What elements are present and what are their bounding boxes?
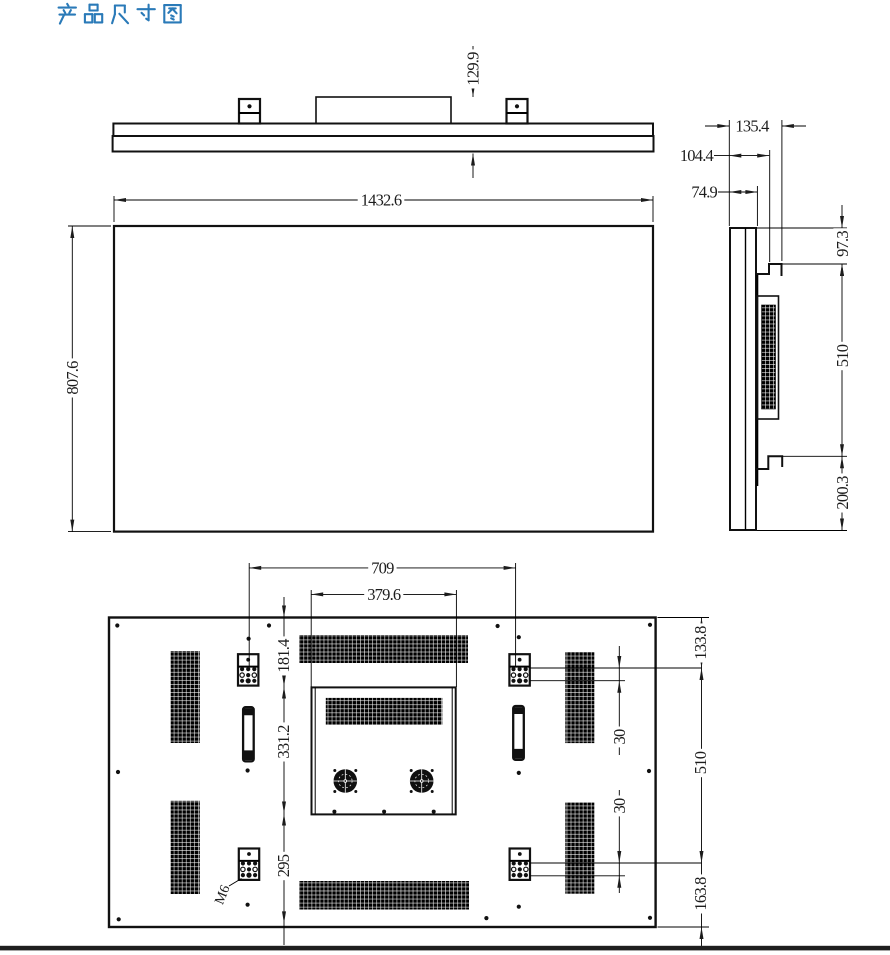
svg-text:133.8: 133.8 (691, 626, 710, 660)
svg-text:74.9: 74.9 (691, 183, 717, 202)
svg-text:709: 709 (371, 558, 394, 577)
svg-text:181.4: 181.4 (274, 639, 293, 673)
svg-text:331.2: 331.2 (274, 725, 293, 759)
svg-text:510: 510 (691, 751, 710, 774)
svg-text:30: 30 (610, 798, 629, 813)
svg-text:295: 295 (274, 854, 293, 877)
svg-text:510: 510 (833, 344, 852, 367)
svg-text:807.6: 807.6 (63, 361, 82, 395)
svg-text:135.4: 135.4 (735, 117, 769, 136)
svg-text:1432.6: 1432.6 (361, 191, 402, 210)
svg-text:379.6: 379.6 (367, 585, 401, 604)
svg-text:200.3: 200.3 (833, 476, 852, 510)
svg-text:129.9: 129.9 (464, 52, 483, 86)
svg-text:30: 30 (610, 729, 629, 744)
svg-text:104.4: 104.4 (680, 146, 714, 165)
svg-text:163.8: 163.8 (691, 877, 710, 911)
svg-text:97.3: 97.3 (833, 231, 852, 257)
